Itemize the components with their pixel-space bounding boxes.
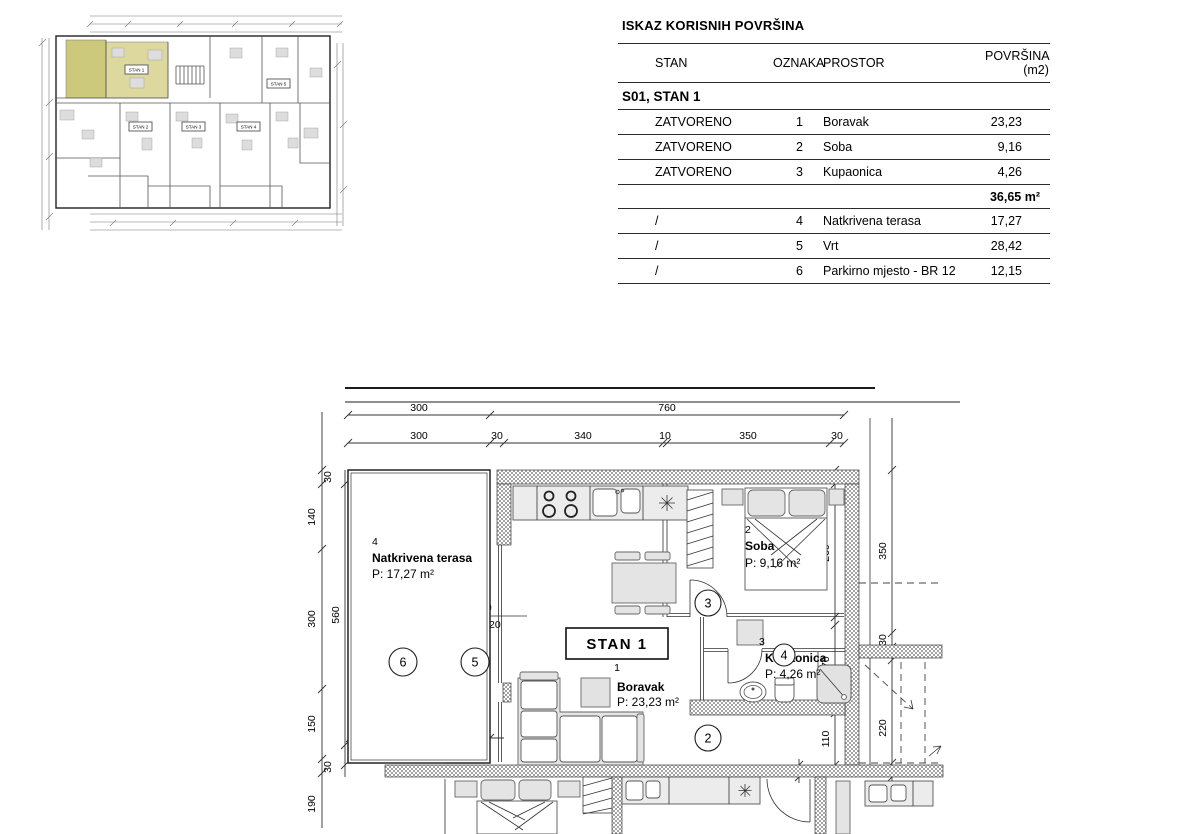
floor-plan: 300 760 300 30 340 10 350 30 30 140 300 …	[293, 378, 1003, 834]
stair-entry-area	[859, 583, 942, 763]
room-name-terasa: Natkrivena terasa	[372, 551, 472, 565]
nightstand	[829, 489, 844, 505]
room-area-soba: P: 9,16 m²	[745, 556, 800, 570]
cell-prostor: Boravak	[815, 115, 985, 129]
room-number-soba: 2	[745, 524, 751, 536]
cell-prostor: Vrt	[815, 239, 985, 253]
cell-povrsina: 17,27	[985, 214, 1050, 228]
cell-oznaka: 2	[773, 140, 803, 154]
cell-povrsina: 9,16	[985, 140, 1050, 154]
neighbour-wardrobe-icon	[583, 777, 612, 814]
neighbour-kitchen-right	[865, 781, 933, 806]
table-row: ZATVORENO 1 Boravak 23,23	[618, 110, 1050, 135]
terrace	[348, 470, 490, 763]
wardrobe-icon	[687, 490, 713, 568]
dim-label: 150	[306, 715, 318, 733]
overview-label-stan4: STAN 4	[241, 125, 257, 130]
dim-label: 560	[330, 606, 342, 624]
room-area-kupaonica: P: 4,26 m²	[765, 667, 820, 681]
overview-label-stan3: STAN 3	[186, 125, 202, 130]
overview-plan: STAN 1 STAN 2 STAN 3 STAN 4 STAN 5	[30, 8, 350, 240]
marker-3: 3	[705, 597, 712, 611]
room-number-kupaonica: 3	[759, 636, 765, 648]
neighbour-kitchen	[622, 777, 760, 804]
dim-label: 350	[739, 430, 757, 442]
nightstand	[722, 489, 743, 505]
header-prostor: PROSTOR	[815, 56, 985, 70]
room-name-soba: Soba	[745, 539, 775, 553]
sink-icon	[593, 489, 640, 516]
room-number-terasa: 4	[372, 536, 378, 548]
cell-prostor: Parkirno mjesto - BR 12	[815, 264, 985, 278]
dim-label: 300	[306, 610, 318, 628]
cell-prostor: Natkrivena terasa	[815, 214, 985, 228]
area-swatch	[581, 678, 610, 707]
bathroom-door	[728, 649, 762, 683]
room-area-boravak: P: 23,23 m²	[617, 695, 679, 709]
overview-label-stan2: STAN 2	[133, 125, 149, 130]
drawing-sheet: STAN 1 STAN 2 STAN 3 STAN 4 STAN 5 ISKAZ…	[0, 0, 1200, 834]
cell-stan: ZATVORENO	[655, 140, 773, 154]
dim-label: 30	[877, 634, 889, 646]
cell-stan: ZATVORENO	[655, 115, 773, 129]
area-table: ISKAZ KORISNIH POVRŠINA STAN OZNAKA PROS…	[618, 12, 1050, 284]
table-section-title: S01, STAN 1	[618, 83, 1050, 110]
kitchen	[513, 486, 688, 520]
cell-prostor: Kupaonica	[815, 165, 985, 179]
cell-stan: /	[655, 214, 773, 228]
dim-label: 30	[491, 430, 503, 442]
cell-oznaka: 5	[773, 239, 803, 253]
dim-label: 30	[322, 471, 334, 483]
room-name-boravak: Boravak	[617, 680, 665, 694]
overview-label-stan1: STAN 1	[129, 68, 145, 73]
cell-povrsina: 12,15	[985, 264, 1050, 278]
dim-label: 30	[322, 761, 334, 773]
table-title: ISKAZ KORISNIH POVRŠINA	[618, 12, 1050, 44]
dim-label: 220	[877, 719, 889, 737]
table-subtotal: 36,65 m²	[618, 185, 1050, 209]
table-row: / 5 Vrt 28,42	[618, 234, 1050, 259]
cell-povrsina: 4,26	[985, 165, 1050, 179]
dim-label: 300	[410, 430, 428, 442]
overview-building: STAN 1 STAN 2 STAN 3 STAN 4 STAN 5	[56, 36, 330, 208]
overview-label-stan5: STAN 5	[271, 82, 287, 87]
shower-icon	[817, 665, 851, 703]
washbasin-icon	[740, 682, 766, 702]
cell-prostor: Soba	[815, 140, 985, 154]
marker-2: 2	[705, 732, 712, 746]
unit-label: STAN 1	[586, 636, 647, 653]
marker-4: 4	[781, 649, 788, 663]
cell-oznaka: 4	[773, 214, 803, 228]
terrace-window	[499, 545, 502, 762]
cell-oznaka: 1	[773, 115, 803, 129]
toilet-icon	[775, 678, 794, 702]
cell-stan: /	[655, 239, 773, 253]
table-row: ZATVORENO 3 Kupaonica 4,26	[618, 160, 1050, 185]
marker-6: 6	[400, 656, 407, 670]
table-row: / 4 Natkrivena terasa 17,27	[618, 209, 1050, 234]
living-room: STAN 1 1 Boravak P: 23,23 m²	[518, 628, 679, 765]
table-row: ZATVORENO 2 Soba 9,16	[618, 135, 1050, 160]
cell-stan: ZATVORENO	[655, 165, 773, 179]
dim-label: 110	[820, 730, 832, 747]
room-area-terasa: P: 17,27 m²	[372, 567, 434, 581]
cell-povrsina: 23,23	[985, 115, 1050, 129]
dim-label: 300	[410, 402, 428, 414]
cell-oznaka: 3	[773, 165, 803, 179]
dim-label: 10	[659, 430, 671, 442]
cell-oznaka: 6	[773, 264, 803, 278]
room-number-boravak: 1	[614, 662, 620, 674]
cell-stan: /	[655, 264, 773, 278]
header-povrsina: POVRŠINA (m2)	[985, 49, 1061, 77]
dim-label: 190	[306, 795, 318, 813]
bathroom: 3 Kupaonica P: 4,26 m²	[737, 620, 851, 703]
dim-label: 30	[831, 430, 843, 442]
bedroom: 2 Soba P: 9,16 m²	[687, 488, 844, 590]
dim-label: 760	[658, 402, 676, 414]
cell-povrsina: 28,42	[985, 239, 1050, 253]
overview-highlight-terrace	[66, 40, 106, 98]
dim-label: 140	[306, 508, 318, 526]
header-stan: STAN	[655, 56, 773, 70]
header-oznaka: OZNAKA	[773, 56, 803, 70]
dining-set	[612, 552, 676, 614]
table-header-row: STAN OZNAKA PROSTOR POVRŠINA (m2)	[618, 44, 1050, 83]
table-row: / 6 Parkirno mjesto - BR 12 12,15	[618, 259, 1050, 284]
marker-5: 5	[472, 656, 479, 670]
neighbour-bed-icon	[477, 780, 557, 834]
neighbour-door	[767, 779, 810, 822]
dim-label: 340	[574, 430, 592, 442]
dim-label: 350	[877, 542, 889, 560]
